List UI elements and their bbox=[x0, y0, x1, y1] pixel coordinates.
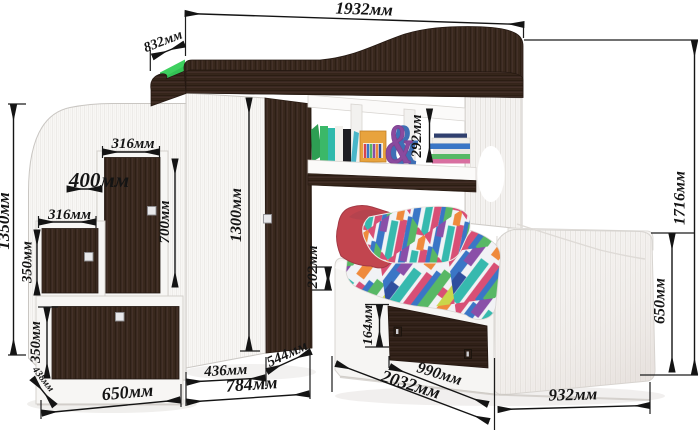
svg-text:316мм: 316мм bbox=[47, 207, 91, 223]
svg-text:650мм: 650мм bbox=[652, 278, 669, 324]
svg-text:400мм: 400мм bbox=[68, 168, 129, 192]
svg-text:350мм: 350мм bbox=[20, 241, 36, 284]
svg-text:1350мм: 1350мм bbox=[0, 192, 13, 250]
svg-text:1716мм: 1716мм bbox=[672, 171, 689, 225]
svg-text:164мм: 164мм bbox=[361, 305, 376, 346]
svg-text:1300мм: 1300мм bbox=[228, 188, 245, 242]
svg-text:316мм: 316мм bbox=[110, 136, 154, 152]
svg-text:700мм: 700мм bbox=[157, 200, 173, 243]
svg-text:784мм: 784мм bbox=[225, 372, 278, 396]
svg-text:292мм: 292мм bbox=[409, 114, 425, 158]
svg-text:350мм: 350мм bbox=[28, 321, 44, 364]
svg-text:202мм: 202мм bbox=[305, 245, 321, 289]
svg-text:1932мм: 1932мм bbox=[335, 0, 393, 19]
svg-text:932мм: 932мм bbox=[548, 384, 598, 404]
